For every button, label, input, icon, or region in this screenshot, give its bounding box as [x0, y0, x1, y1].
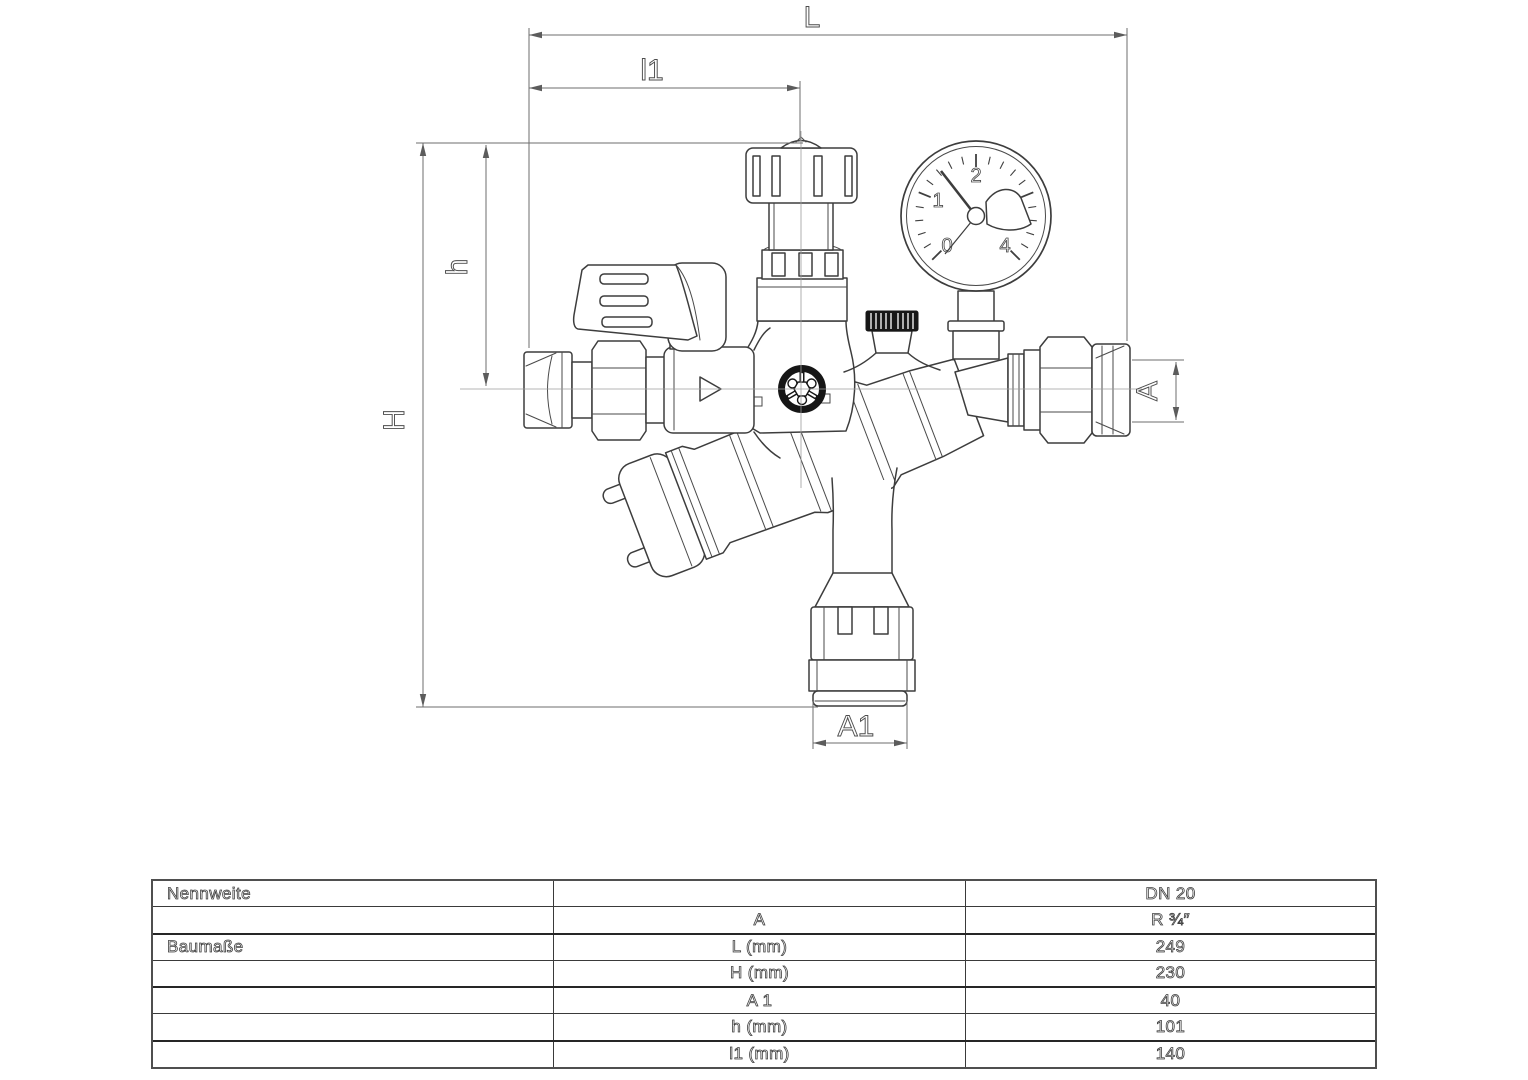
table-cell-value: 101 — [966, 1014, 1375, 1039]
table-cell-section — [153, 988, 554, 1013]
right-union-hex-nut — [1040, 337, 1092, 443]
test-port — [844, 311, 940, 372]
dimension-table: Nennweite DN 20 A R ¾″ Baumaße L (mm) 24… — [151, 879, 1377, 1069]
table-cell-parameter: l1 (mm) — [554, 1042, 966, 1067]
table-row: H (mm) 230 — [153, 961, 1375, 988]
dimension-label-H: H — [378, 409, 411, 431]
dimension-A1: A1 — [813, 710, 907, 746]
table-row: A 1 40 — [153, 988, 1375, 1014]
handle-slot — [600, 296, 648, 306]
table-row: l1 (mm) 140 — [153, 1042, 1375, 1067]
table-cell-value: 140 — [966, 1042, 1375, 1067]
valve-technical-drawing: 0 1 2 3 4 — [0, 0, 1528, 862]
dimension-label-A: A — [1131, 381, 1164, 401]
black-knurled-cap — [866, 311, 918, 331]
outlet-cone — [815, 573, 909, 607]
outlet-ring — [809, 660, 915, 691]
table-cell-section — [153, 1014, 554, 1039]
dimension-label-L: L — [804, 1, 821, 34]
gauge-number-2: 2 — [970, 165, 981, 187]
table-cell-section: Baumaße — [153, 935, 554, 960]
dimension-label-A1: A1 — [838, 710, 875, 743]
table-cell-parameter: h (mm) — [554, 1014, 966, 1039]
handle-slot — [602, 317, 652, 327]
table-row: Nennweite DN 20 — [153, 881, 1375, 907]
table-cell-value: 40 — [966, 988, 1375, 1013]
pressure-gauge: 0 1 2 3 4 — [901, 141, 1051, 359]
table-cell-section — [153, 1042, 554, 1067]
table-cell-parameter: H (mm) — [554, 961, 966, 986]
table-cell-section — [153, 907, 554, 932]
handle-slot — [600, 274, 648, 284]
gauge-stem — [958, 291, 994, 322]
technical-drawing-page: 0 1 2 3 4 — [0, 0, 1528, 1080]
gauge-base-block — [953, 331, 999, 359]
table-row: Baumaße L (mm) 249 — [153, 935, 1375, 961]
outlet-union-nut — [811, 607, 913, 660]
dimension-label-l1: l1 — [640, 54, 663, 87]
gauge-flange — [948, 321, 1004, 331]
table-cell-parameter: A — [554, 907, 966, 932]
outlet-lip — [813, 691, 907, 706]
table-cell-parameter — [554, 881, 966, 906]
table-cell-parameter: A 1 — [554, 988, 966, 1013]
gauge-hub — [968, 208, 985, 225]
table-cell-section: Nennweite — [153, 881, 554, 906]
gauge-number-1: 1 — [932, 190, 943, 212]
dimension-H: H — [378, 143, 426, 707]
dimension-L: L — [529, 1, 1127, 38]
table-row: h (mm) 101 — [153, 1014, 1375, 1041]
table-cell-value: DN 20 — [966, 881, 1375, 906]
gauge-number-4: 4 — [999, 235, 1010, 257]
table-cell-parameter: L (mm) — [554, 935, 966, 960]
table-cell-value: 249 — [966, 935, 1375, 960]
table-cell-section — [153, 961, 554, 986]
spring-housing — [757, 278, 847, 321]
dimension-l1: l1 — [529, 54, 800, 91]
left-union-hex-nut — [592, 341, 646, 440]
dimension-h: h — [441, 145, 489, 386]
dimension-label-h: h — [441, 259, 474, 276]
table-row: A R ¾″ — [153, 907, 1375, 934]
table-cell-value: R ¾″ — [966, 907, 1375, 932]
adjustment-knob — [746, 148, 857, 203]
right-collar-ring — [1008, 354, 1024, 426]
dimension-A: A — [1131, 362, 1179, 420]
left-inlet-assembly — [524, 263, 754, 440]
table-cell-value: 230 — [966, 961, 1375, 986]
